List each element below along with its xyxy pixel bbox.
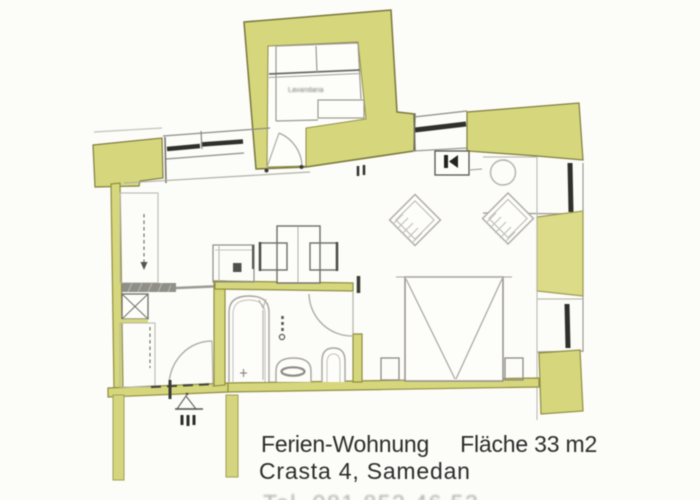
svg-text:Lavandaria: Lavandaria [288, 87, 324, 94]
